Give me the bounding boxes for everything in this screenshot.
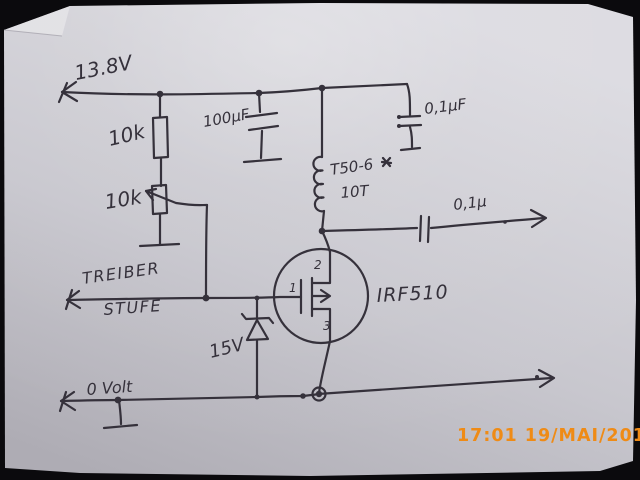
junction-dot [203,295,210,302]
junction-dot [316,391,322,397]
ink-dot [397,124,401,128]
ink-dot [503,220,507,224]
junction-dot [300,393,306,399]
mosfet-pin2-label: 2 [314,258,322,272]
camera-timestamp: 17:01 19/MAI/2017 [457,426,640,446]
mosfet-part-label: IRF510 [376,281,449,307]
output-cap-plate [420,216,421,241]
mosfet-pin3-label: 3 [323,319,331,333]
photo-canvas: 13.8V 10k 10k 100µF 0,1µF T50-6 10T 0,1µ… [0,0,640,480]
schematic-photo: 13.8V 10k 10k 100µF 0,1µF T50-6 10T 0,1µ… [0,0,640,480]
ink-dot [397,115,401,119]
toroid-turns-label: 10T [340,181,372,202]
bulk-cap-bottom-lead [261,131,262,158]
ink-dot [535,375,539,379]
output-cap-plate [428,217,429,242]
mosfet-pin1-label: 1 [289,281,297,295]
bypass-cap-plate [399,116,420,117]
bypass-cap-plate [399,125,421,126]
ground-rail-label: 0 Volt [86,377,134,399]
bulk-cap-top-lead [259,93,260,112]
driver-stage-label-line2: STUFE [103,296,163,319]
junction-dot [255,395,260,400]
wiper-to-gate-wire [206,205,207,298]
